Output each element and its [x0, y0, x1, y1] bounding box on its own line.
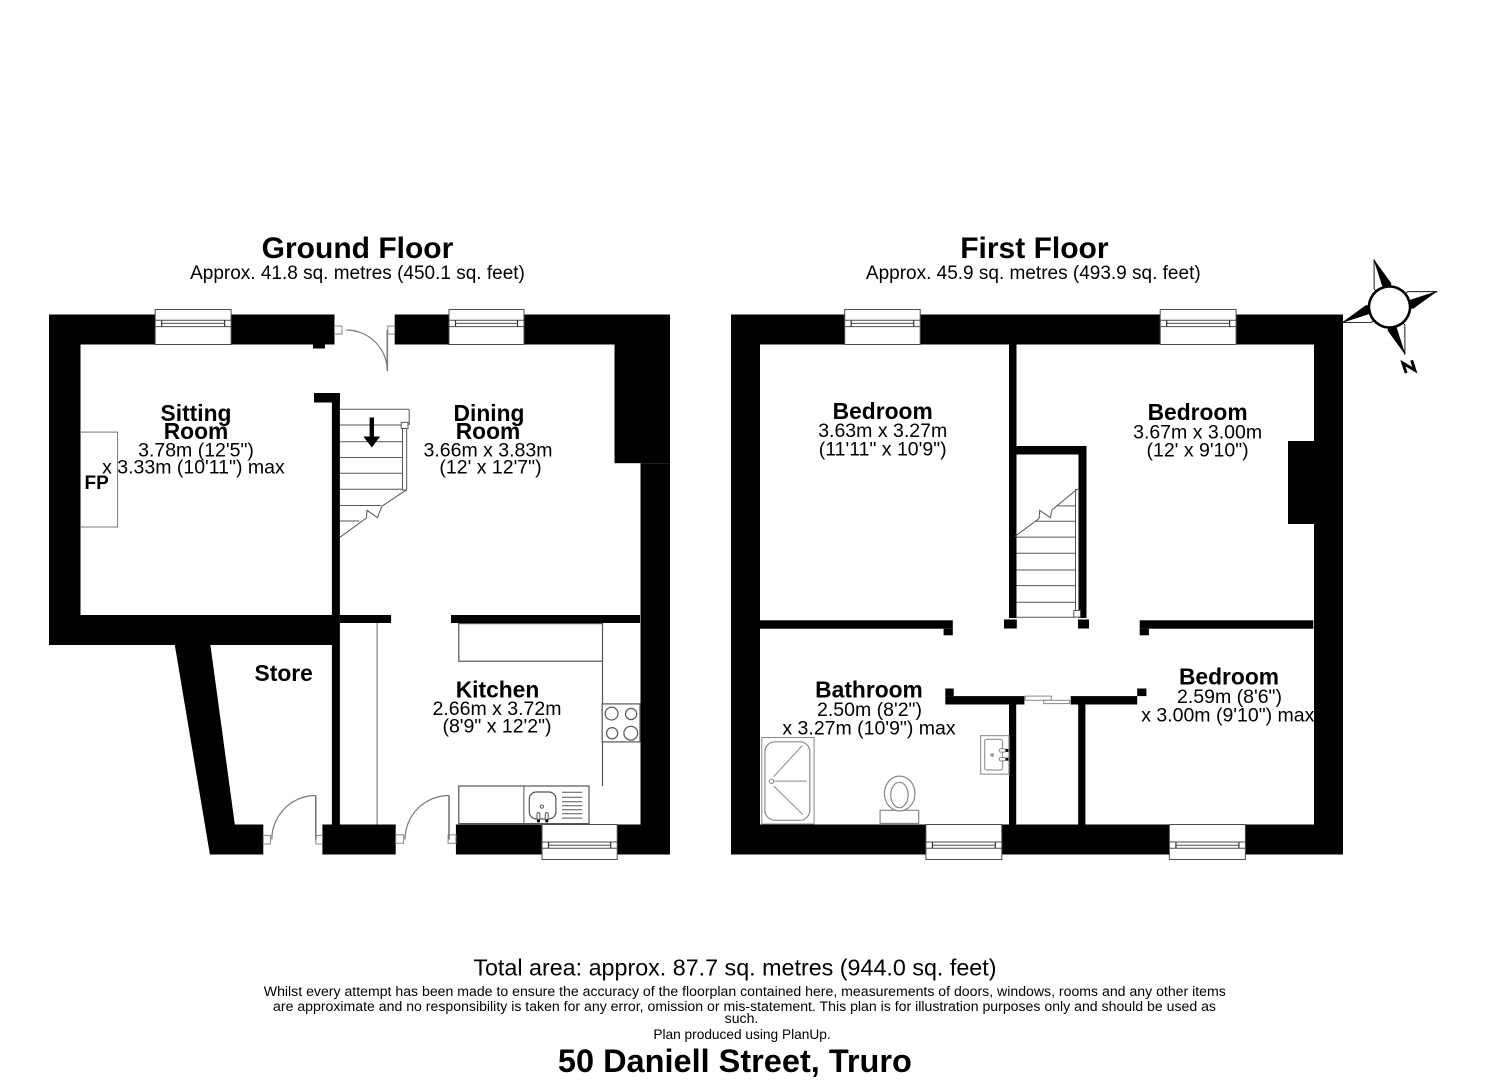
- svg-text:Store: Store: [255, 660, 313, 686]
- svg-text:x 3.27m (10'9") max: x 3.27m (10'9") max: [782, 718, 955, 740]
- svg-text:(12' x 12'7"): (12' x 12'7"): [439, 457, 541, 479]
- svg-text:(11'11" x 10'9"): (11'11" x 10'9"): [819, 438, 947, 460]
- svg-text:Approx. 45.9 sq. metres (493.9: Approx. 45.9 sq. metres (493.9 sq. feet): [866, 263, 1201, 284]
- svg-text:Approx. 41.8 sq. metres (450.1: Approx. 41.8 sq. metres (450.1 sq. feet): [190, 263, 525, 284]
- svg-text:First Floor: First Floor: [960, 232, 1109, 265]
- svg-text:50 Daniell Street, Truro: 50 Daniell Street, Truro: [558, 1043, 912, 1079]
- svg-text:(12' x 9'10"): (12' x 9'10"): [1147, 440, 1249, 462]
- svg-text:x 3.00m (9'10") max: x 3.00m (9'10") max: [1141, 705, 1314, 727]
- svg-text:Whilst every attempt has been: Whilst every attempt has been made to en…: [264, 983, 1226, 999]
- svg-text:x 3.33m (10'11") max: x 3.33m (10'11") max: [102, 457, 285, 479]
- svg-text:such.: such.: [725, 1010, 759, 1026]
- svg-text:Total area: approx. 87.7 sq. m: Total area: approx. 87.7 sq. metres (944…: [473, 954, 996, 980]
- svg-text:Plan produced using PlanUp.: Plan produced using PlanUp.: [653, 1027, 830, 1042]
- svg-text:(8'9" x 12'2"): (8'9" x 12'2"): [442, 715, 551, 737]
- svg-text:Ground Floor: Ground Floor: [262, 232, 454, 265]
